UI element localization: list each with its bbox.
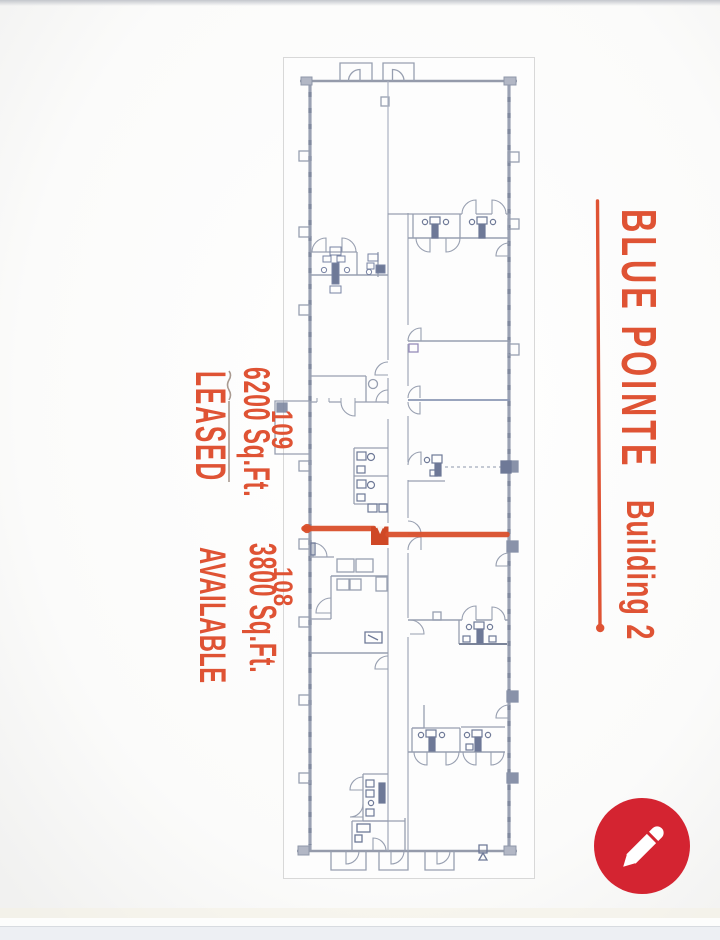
svg-text:3800 Sq.Ft.: 3800 Sq.Ft. bbox=[242, 543, 284, 673]
svg-text:BLUE POINTE: BLUE POINTE bbox=[611, 209, 667, 469]
svg-text:108: 108 bbox=[268, 567, 297, 607]
svg-text:109: 109 bbox=[265, 410, 299, 450]
svg-text:AVAILABLE: AVAILABLE bbox=[192, 547, 234, 684]
svg-text:LEASED: LEASED bbox=[186, 371, 233, 482]
svg-text:Building 2: Building 2 bbox=[618, 500, 661, 640]
